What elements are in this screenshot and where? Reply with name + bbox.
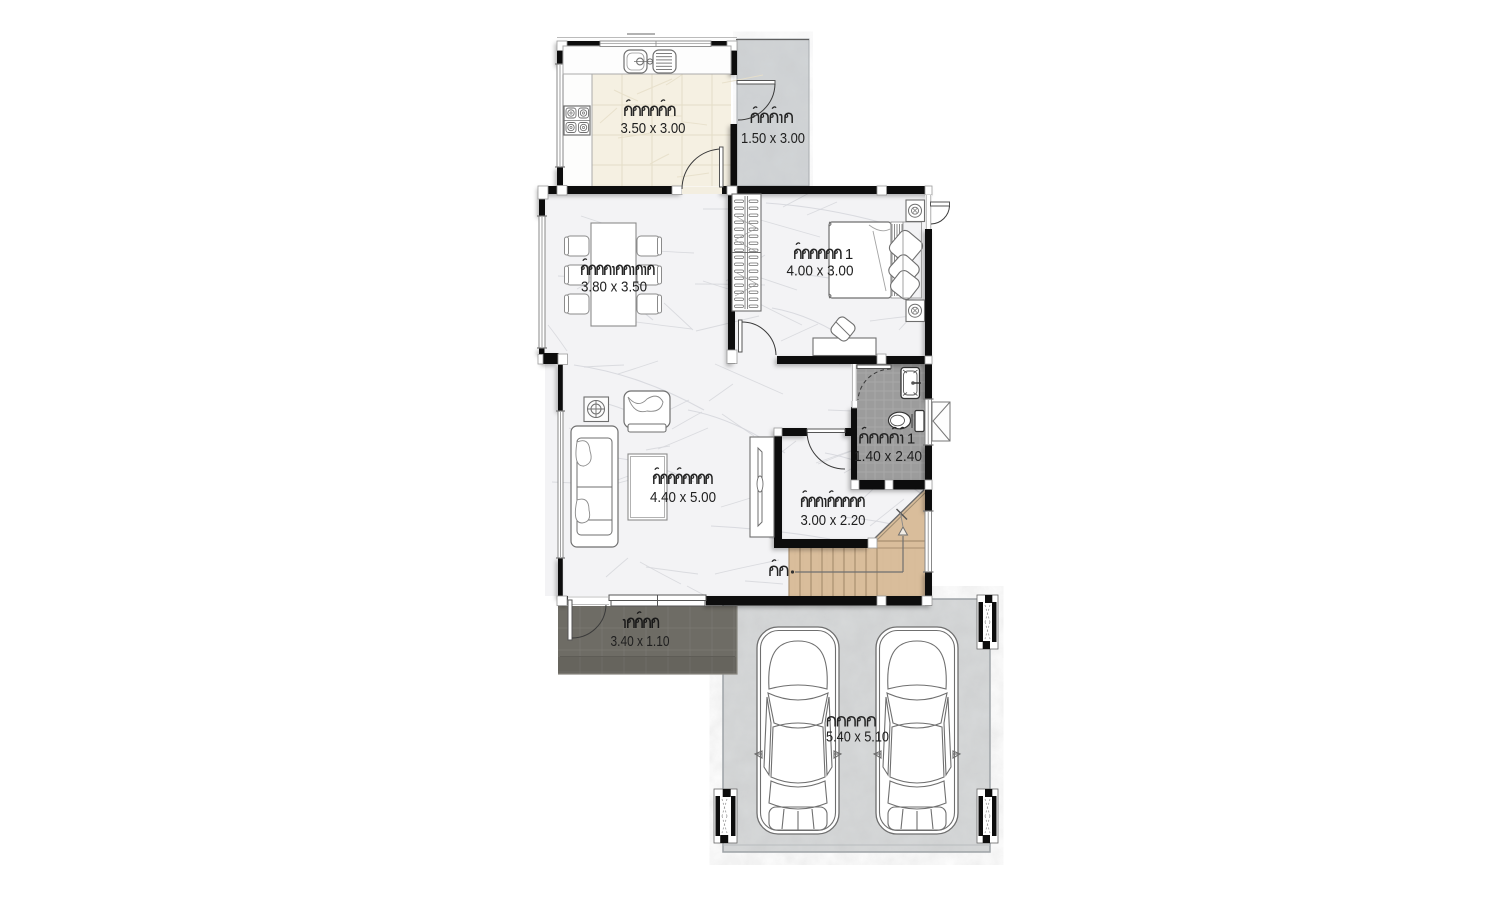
svg-text:4.00 x 3.00: 4.00 x 3.00 — [787, 263, 854, 280]
svg-text:5.40 x 5.10: 5.40 x 5.10 — [826, 729, 889, 746]
svg-text:1.50 x 3.00: 1.50 x 3.00 — [741, 130, 805, 147]
svg-text:3.00 x 2.20: 3.00 x 2.20 — [801, 512, 866, 529]
svg-text:3.50 x 3.00: 3.50 x 3.00 — [621, 120, 686, 137]
svg-text:3.40 x 1.10: 3.40 x 1.10 — [611, 633, 670, 650]
svg-text:1: 1 — [845, 246, 853, 263]
svg-text:4.40 x 5.00: 4.40 x 5.00 — [650, 489, 716, 506]
svg-text:1.40 x 2.40: 1.40 x 2.40 — [854, 448, 922, 465]
svg-text:3.80 x 3.50: 3.80 x 3.50 — [581, 279, 647, 296]
svg-text:1: 1 — [907, 431, 915, 448]
